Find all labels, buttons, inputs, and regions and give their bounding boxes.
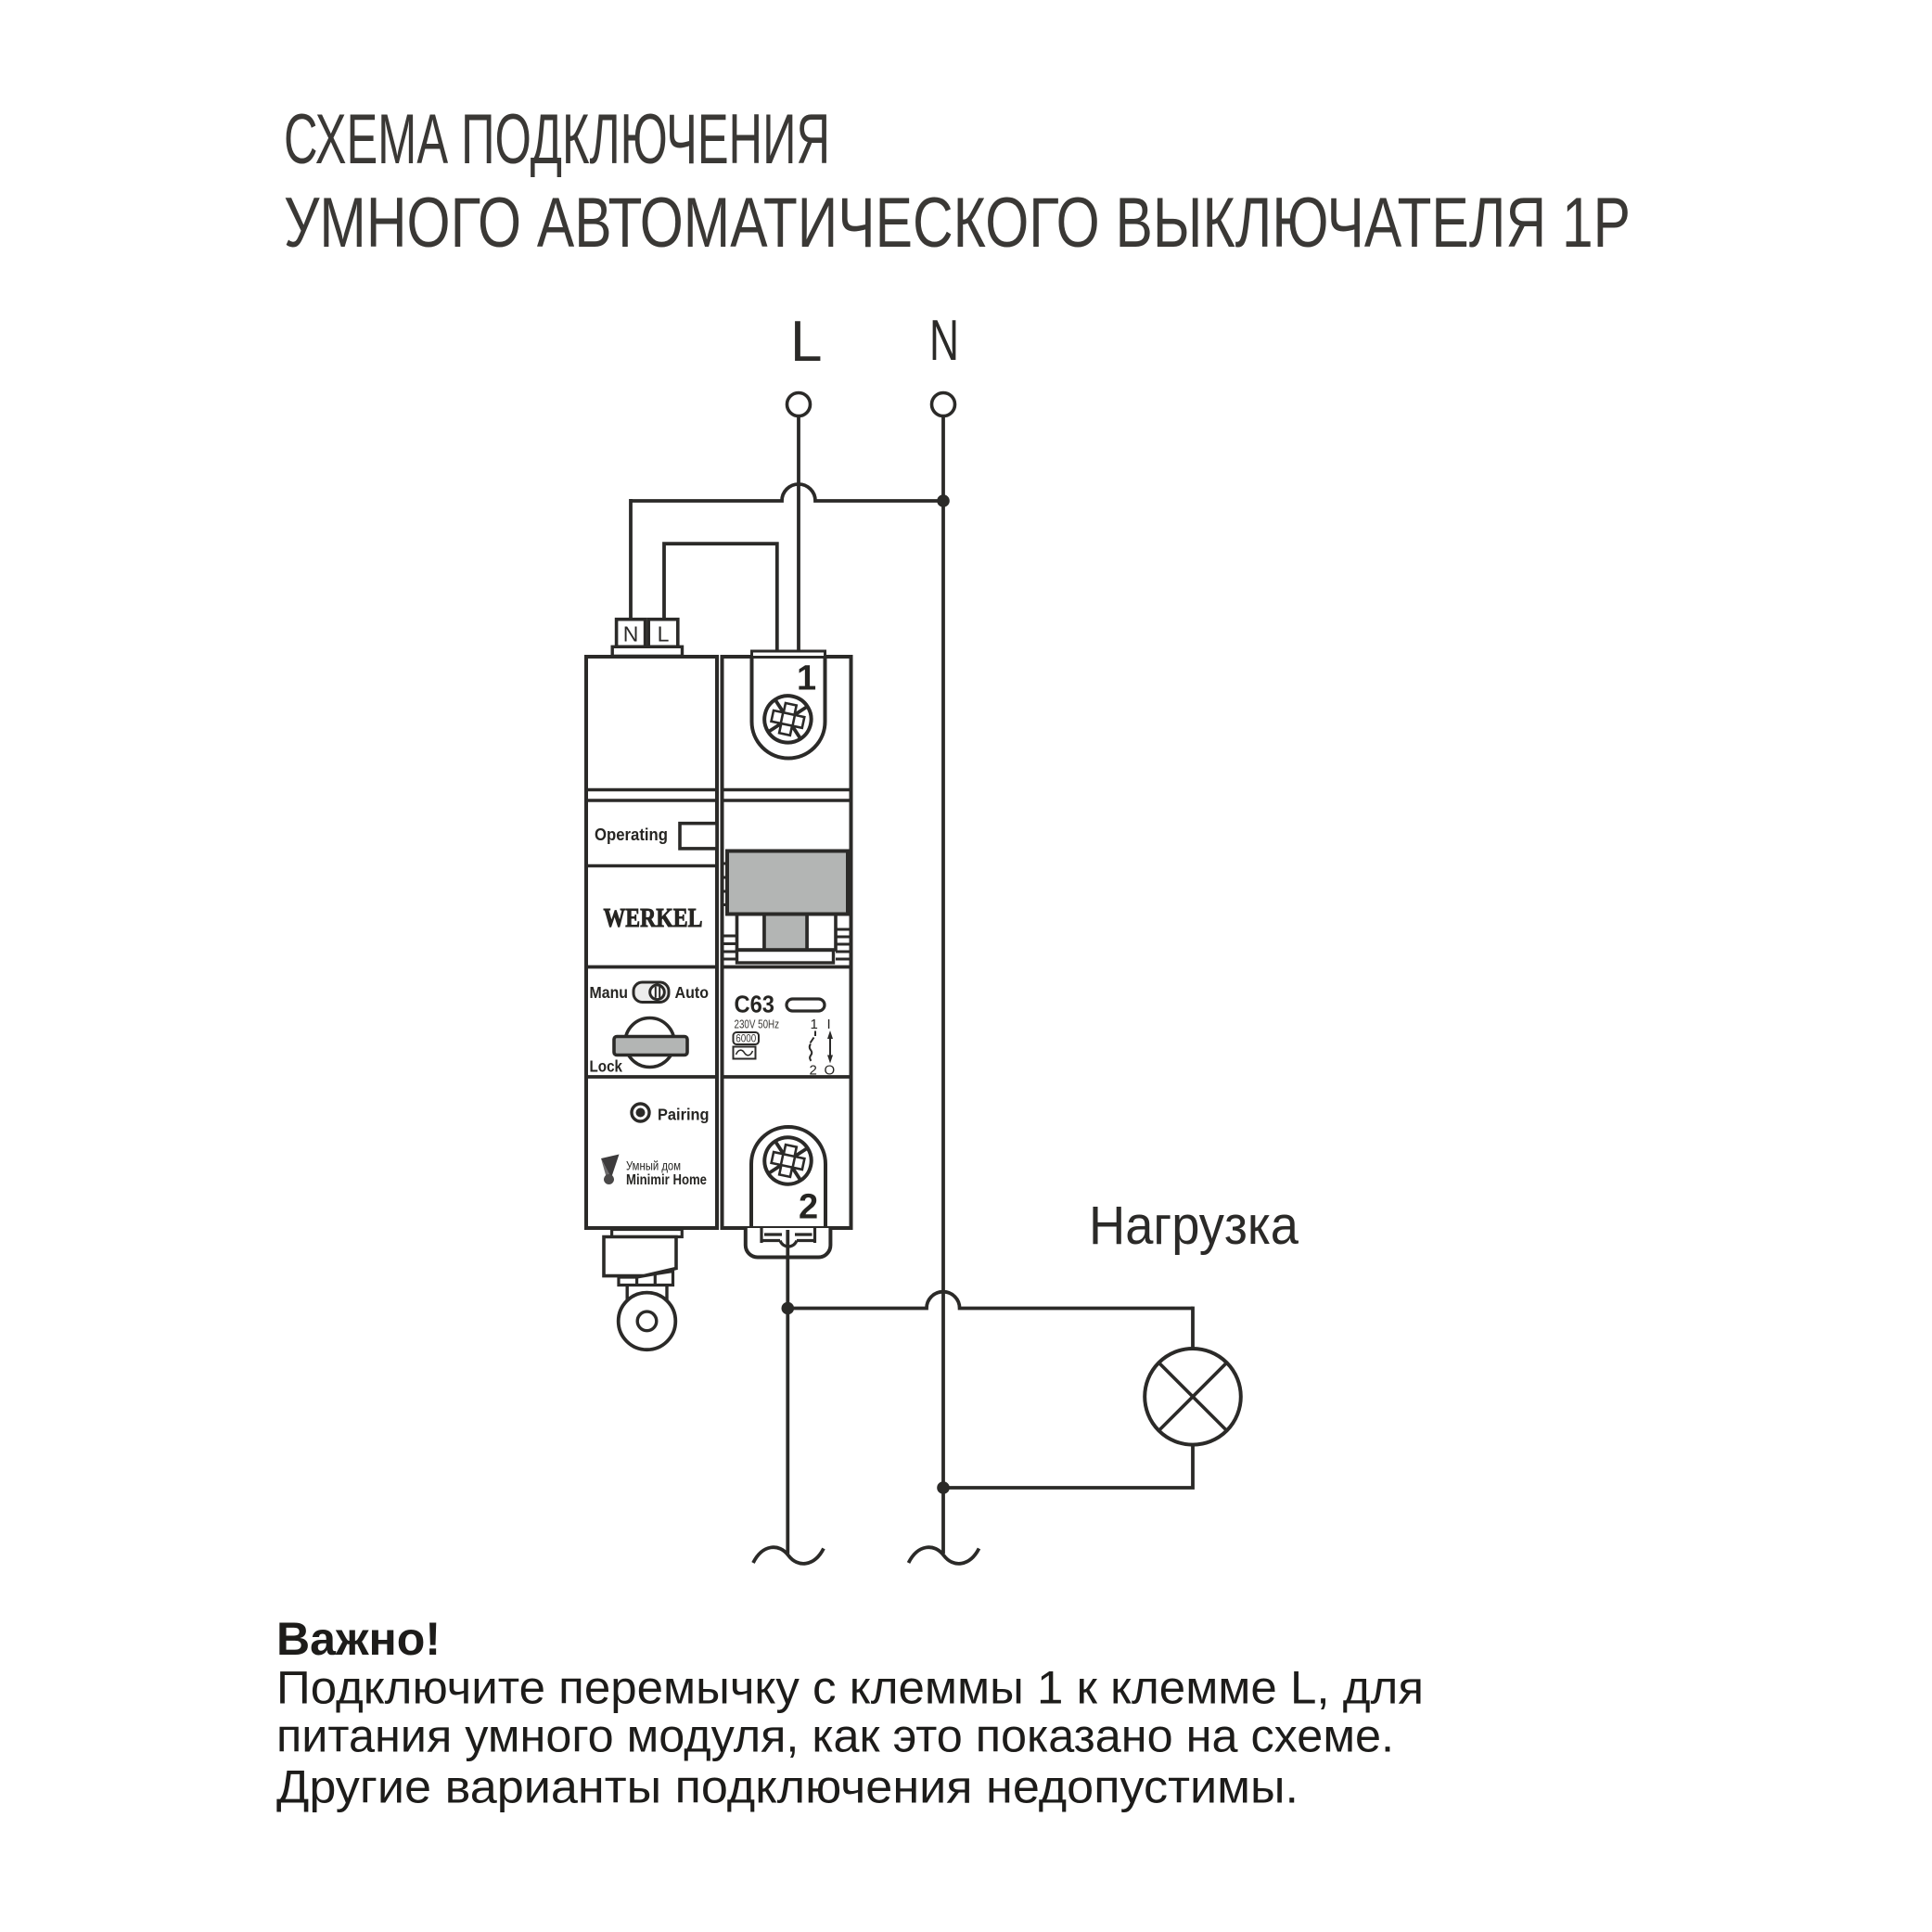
svg-text:СХЕМА ПОДКЛЮЧЕНИЯ: СХЕМА ПОДКЛЮЧЕНИЯ [284, 100, 830, 179]
svg-text:1: 1 [797, 659, 816, 698]
svg-text:L: L [790, 310, 822, 374]
svg-text:C63: C63 [735, 991, 775, 1018]
svg-text:WERKEL: WERKEL [604, 903, 703, 933]
svg-text:питания умного модуля, как это: питания умного модуля, как это показано … [276, 1710, 1394, 1762]
svg-text:Minimir Home: Minimir Home [626, 1172, 707, 1188]
svg-text:2: 2 [810, 1063, 817, 1079]
svg-text:Auto: Auto [675, 983, 710, 1002]
svg-text:Lock: Lock [590, 1057, 623, 1076]
svg-text:N: N [623, 622, 639, 646]
svg-text:6000: 6000 [736, 1032, 756, 1045]
svg-text:Важно!: Важно! [276, 1613, 441, 1665]
svg-text:Подключите перемычку с клеммы: Подключите перемычку с клеммы 1 к клемме… [276, 1662, 1424, 1714]
svg-text:O: O [825, 1063, 836, 1079]
svg-text:Другие варианты подключения не: Другие варианты подключения недопустимы. [276, 1761, 1299, 1813]
svg-text:Нагрузка: Нагрузка [1089, 1196, 1299, 1256]
svg-text:УМНОГО АВТОМАТИЧЕСКОГО ВЫКЛЮЧА: УМНОГО АВТОМАТИЧЕСКОГО ВЫКЛЮЧАТЕЛЯ 1Р [284, 184, 1631, 262]
svg-text:Manu: Manu [590, 983, 629, 1002]
svg-text:2: 2 [799, 1188, 818, 1227]
svg-text:1: 1 [811, 1017, 818, 1032]
svg-text:Operating: Operating [595, 825, 668, 844]
svg-text:Умный дом: Умный дом [626, 1158, 681, 1173]
svg-text:Pairing: Pairing [658, 1106, 710, 1124]
svg-text:I: I [827, 1017, 831, 1032]
svg-text:230V 50Hz: 230V 50Hz [735, 1017, 780, 1031]
svg-text:L: L [658, 622, 670, 646]
svg-text:N: N [929, 309, 959, 373]
